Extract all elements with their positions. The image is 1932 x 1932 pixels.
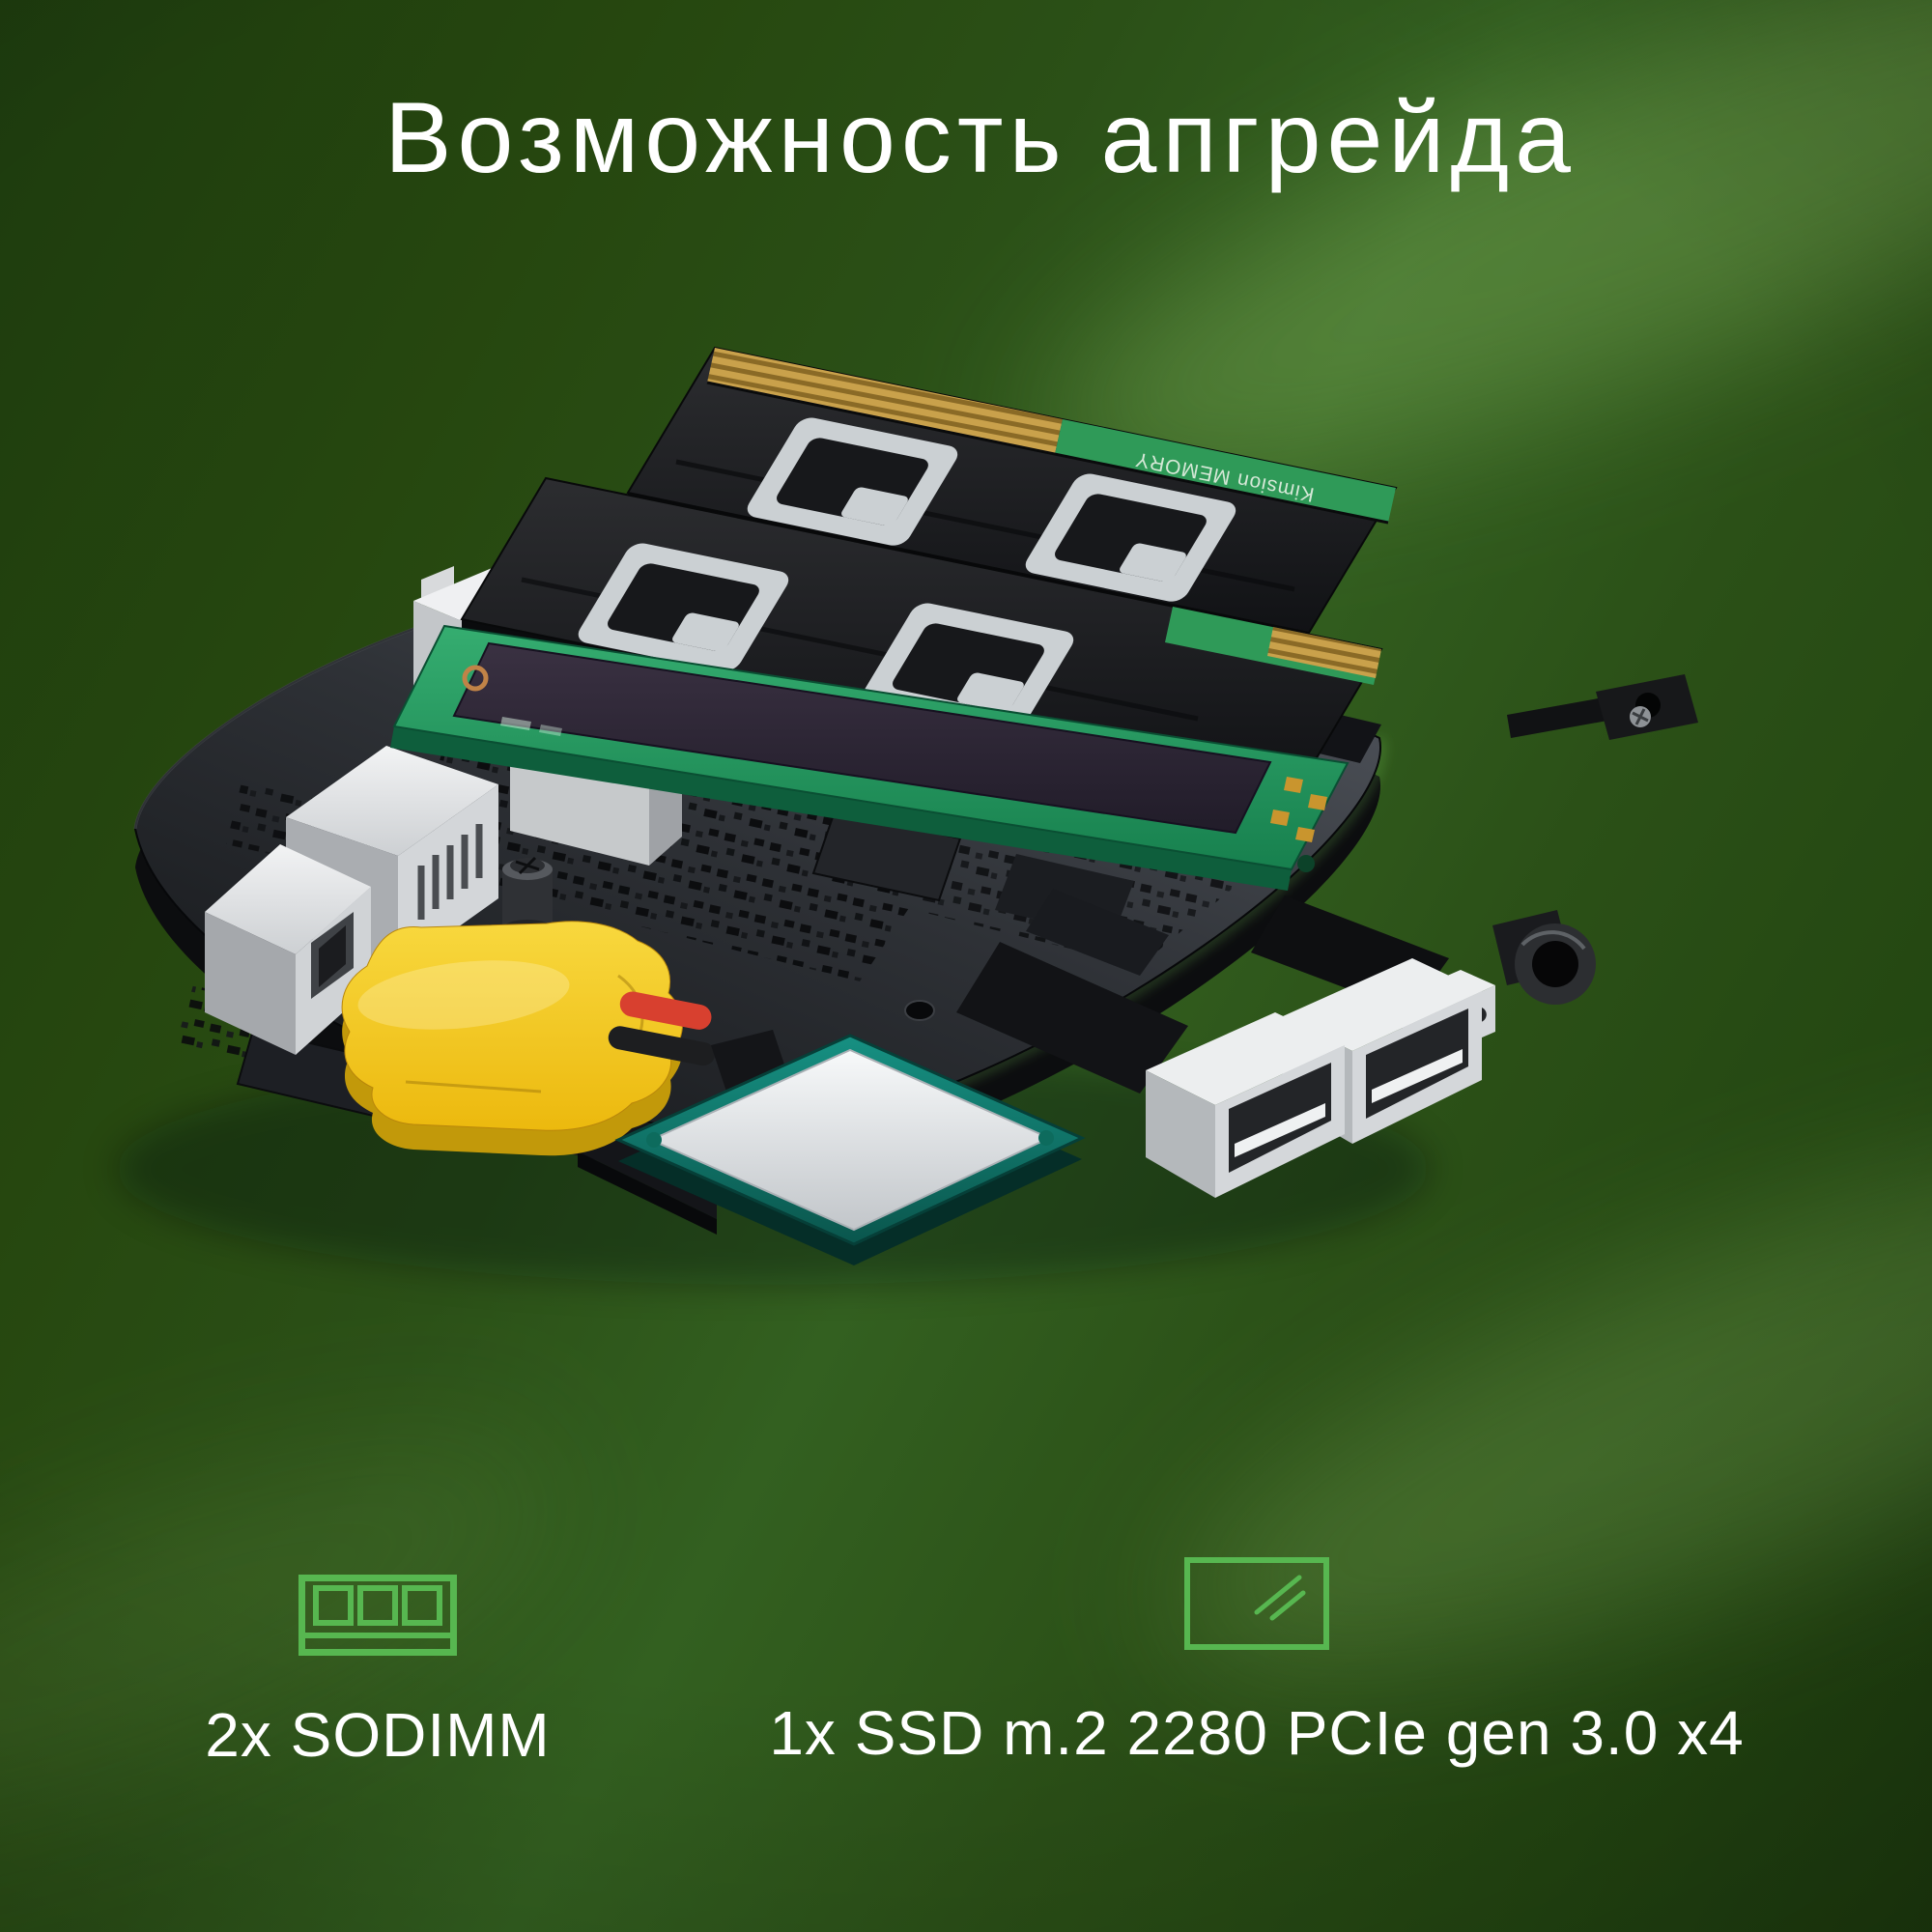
feature-label: 2x SODIMM [205,1699,550,1771]
sodimm-icon [298,1575,457,1656]
product-infographic: Возможность апгрейда [0,0,1932,1932]
ssd-icon [1184,1557,1329,1650]
audio-jack [1492,910,1596,1005]
feature-ssd: 1x SSD m.2 2280 PCIe gen 3.0 x4 [774,1557,1740,1769]
feature-label: 1x SSD m.2 2280 PCIe gen 3.0 x4 [769,1697,1744,1769]
feature-sodimm: 2x SODIMM [136,1575,619,1771]
